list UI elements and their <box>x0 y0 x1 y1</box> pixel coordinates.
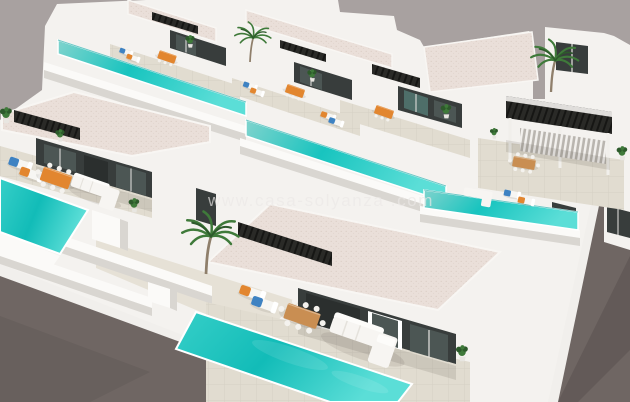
render-canvas: www.casa-solyanza .com <box>0 0 630 402</box>
watermark: www.casa-solyanza .com <box>208 191 434 211</box>
